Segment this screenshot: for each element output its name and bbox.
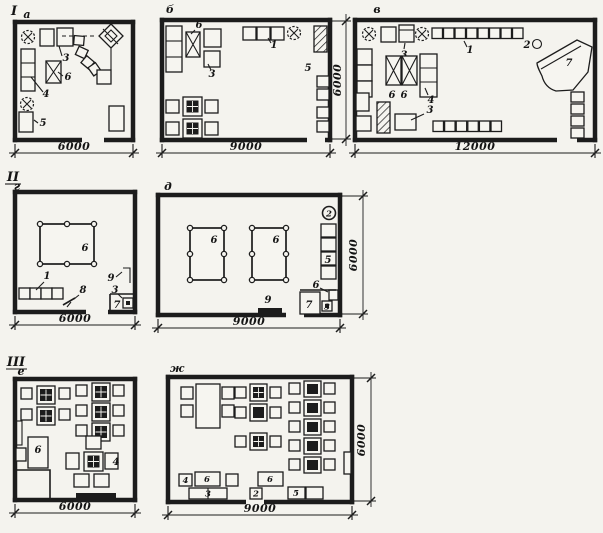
threshold (76, 493, 116, 498)
label-billiard: 6 (211, 235, 218, 246)
plan-a-group-label: I (10, 4, 18, 19)
plan-a-letter: а (23, 8, 30, 21)
plant-icon (21, 98, 34, 111)
chair (16, 448, 26, 461)
dim-width: 12000 (455, 140, 496, 153)
counter (306, 487, 323, 499)
plan-zh-height-dimension: 6000 (354, 372, 376, 507)
plan-d-dimension: 9000 (152, 315, 346, 333)
cue-rack (123, 268, 130, 283)
meeting-table-group (181, 384, 234, 428)
billiard-table (187, 225, 226, 282)
label-cabinet: 7 (306, 300, 313, 311)
label-table: 6 (35, 445, 42, 456)
sofa-row (433, 121, 502, 132)
label-piano: 7 (566, 58, 573, 69)
plan-g-dimension: 6000 (9, 312, 141, 330)
upholstered-chair (402, 56, 417, 85)
label-cue-rack: 9 (108, 273, 115, 284)
label-mat: 9 (265, 295, 272, 306)
cabinet (109, 106, 124, 131)
label-shelf: 4 (43, 89, 50, 100)
rack (314, 26, 327, 52)
label-table: 3 (324, 303, 330, 313)
upholstered-chair (186, 32, 200, 57)
plan-a-dimension: 6000 (9, 140, 139, 158)
game-table-column (289, 381, 335, 473)
label-box: 2 (252, 490, 259, 500)
label-stand: 8 (80, 285, 87, 296)
label-table: 3 (63, 53, 70, 64)
plant-icon (22, 31, 35, 44)
label-stool: 2 (523, 40, 531, 51)
plan-b-letter: б (166, 3, 174, 16)
label-table: 3 (209, 69, 216, 80)
plan-e: III е 6 (6, 355, 141, 518)
sofa-row (432, 28, 523, 39)
label-chair: 4 (113, 457, 120, 468)
game-table-group (66, 436, 118, 487)
dim-width: 9000 (230, 140, 263, 153)
plan-v-dimension: 12000 (349, 140, 601, 158)
score-stand (63, 298, 75, 307)
leader-line (34, 120, 38, 123)
wall-cabinet (344, 452, 351, 474)
chair-column (317, 76, 329, 132)
cabinet (356, 93, 369, 111)
label-seats: 5 (325, 255, 332, 266)
table (381, 27, 396, 42)
label-chair: 6 (401, 90, 408, 101)
game-table-group (235, 384, 281, 450)
plan-b: б 6 3 1 5 (156, 3, 351, 158)
game-table-group (76, 383, 124, 441)
label-chair: 6 (389, 90, 396, 101)
partition (15, 470, 50, 499)
dim-height: 6000 (355, 424, 368, 457)
floor-plan-drawing: I а 3 4 6 5 (0, 0, 603, 533)
floor-mat (258, 308, 282, 314)
label-stool: 2 (325, 210, 332, 220)
label-sofa: 1 (467, 45, 474, 56)
plan-g: II г 6 1 8 9 3 (5, 170, 141, 330)
table (204, 51, 220, 67)
shelf-unit (166, 26, 182, 72)
plan-d-letter: д (164, 180, 172, 193)
cabinet (356, 116, 371, 131)
plan-zh-dimension: 9000 (162, 502, 358, 520)
leader-line (74, 295, 79, 299)
plan-e-letter: е (18, 365, 25, 378)
label-billiard: 6 (82, 243, 89, 254)
game-table-group (166, 97, 218, 138)
billiard-table (249, 225, 288, 282)
sofa-row (243, 27, 284, 40)
label-table: 6 (204, 475, 210, 485)
label-sofa: 1 (271, 40, 278, 51)
label-side-table: 4 (183, 476, 189, 486)
table (399, 25, 414, 42)
leader-line (116, 272, 122, 277)
plan-e-dimension: 6000 (9, 500, 141, 518)
label-billiard: 6 (273, 235, 280, 246)
label-counter: 5 (293, 489, 299, 499)
sofa-column (357, 49, 372, 97)
rack (377, 102, 390, 133)
upholstered-chair (386, 56, 401, 85)
plan-v-letter: в (373, 3, 380, 16)
label-stand: 5 (40, 118, 47, 129)
dim-width: 6000 (58, 140, 91, 153)
plan-d-height-dimension: 6000 (342, 190, 368, 320)
leader-line (404, 43, 405, 49)
chair (226, 474, 238, 486)
grand-piano-icon (537, 40, 592, 91)
plant-icon (363, 28, 376, 41)
piano-stool (533, 40, 542, 49)
label-table: 6 (267, 475, 273, 485)
table (57, 28, 73, 46)
dim-height: 6000 (331, 64, 344, 97)
label-bench: 3 (205, 490, 211, 500)
wall-cabinet (329, 290, 338, 300)
table (395, 114, 416, 130)
plan-zh: ж (162, 362, 376, 520)
game-table-group (21, 386, 70, 425)
label-bench: 1 (44, 271, 51, 282)
stand (19, 112, 33, 132)
dim-height: 6000 (347, 239, 360, 272)
plan-zh-letter: ж (170, 362, 185, 375)
label-table: 3 (427, 105, 434, 116)
tv-icon (99, 24, 123, 48)
plan-b-height-dimension: 6000 (331, 14, 351, 146)
shelf-unit (21, 49, 35, 91)
chair-column (321, 224, 336, 279)
bench-row (19, 288, 63, 299)
plan-b-dimension: 9000 (156, 140, 336, 158)
label-chair: 6 (65, 72, 72, 83)
plan-v: в 3 1 2 (349, 3, 601, 158)
label-chair: 6 (196, 20, 203, 31)
dim-width: 6000 (59, 500, 92, 513)
label-rack: 5 (305, 63, 312, 74)
corner-table (97, 70, 111, 84)
table (204, 29, 221, 47)
scanned-floor-plans-figure: I а 3 4 6 5 (0, 0, 603, 533)
shelf-unit (420, 54, 437, 97)
dim-width: 9000 (244, 502, 277, 515)
dim-width: 6000 (59, 312, 92, 325)
chair-column (571, 92, 584, 138)
plan-d: д 6 6 2 5 6 (152, 180, 368, 333)
dim-width: 9000 (233, 315, 266, 328)
plan-a: I а 3 4 6 5 (9, 4, 139, 158)
plant-icon (416, 28, 429, 41)
plant-icon (288, 27, 301, 40)
label-cabinet: 7 (114, 300, 121, 311)
table (40, 29, 54, 46)
